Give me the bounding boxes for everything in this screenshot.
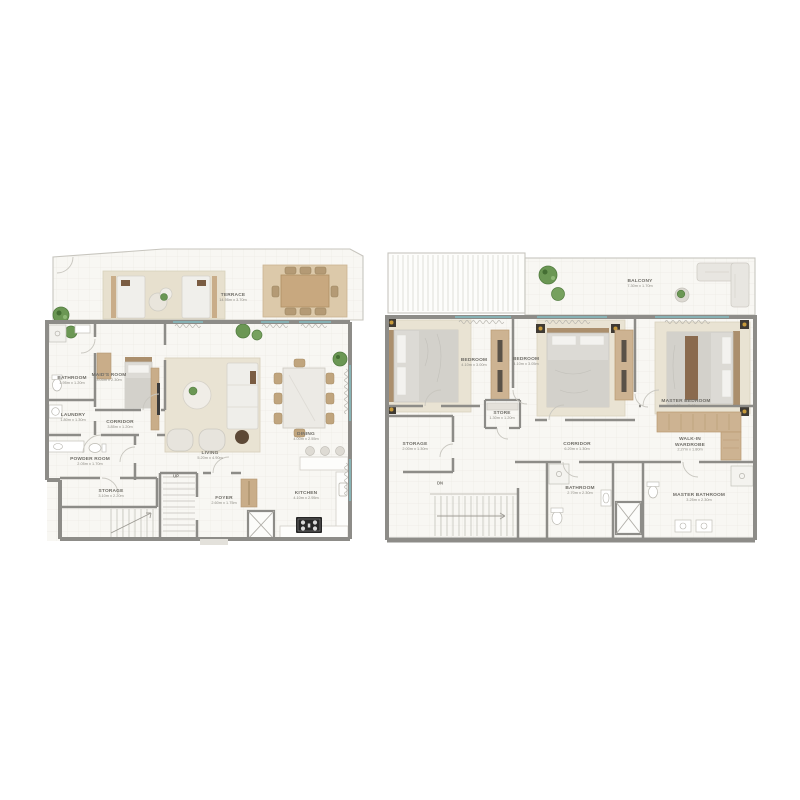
master-bedroom-furniture <box>655 320 750 416</box>
store-shelves <box>487 403 518 410</box>
terrace-lounge-area <box>103 271 225 319</box>
entry-step <box>200 539 228 545</box>
pergola-louvers <box>388 253 525 313</box>
lower-level-drawing <box>45 245 370 545</box>
foyer-closet <box>241 479 257 507</box>
bedroom-2-furniture <box>536 320 633 416</box>
elevator <box>248 511 274 539</box>
dining-furniture <box>274 359 334 437</box>
living-room-furniture <box>165 358 260 452</box>
floor-plan-upper-level: BALCONY7.30m x 1.70m BEDROOM4.10m x 3.00… <box>385 250 760 545</box>
stove-icon <box>296 517 322 533</box>
tv-console <box>151 368 160 430</box>
elevator <box>616 502 641 534</box>
terrace-dining-area <box>263 265 347 317</box>
floorplan-canvas: TERRACE14.95m x 3.70m BATHROOM1.95m x 1.… <box>0 0 800 800</box>
laundry-fixtures <box>49 405 62 418</box>
upper-level-drawing <box>385 250 760 545</box>
floor-plan-lower-level: TERRACE14.95m x 3.70m BATHROOM1.95m x 1.… <box>45 245 370 545</box>
